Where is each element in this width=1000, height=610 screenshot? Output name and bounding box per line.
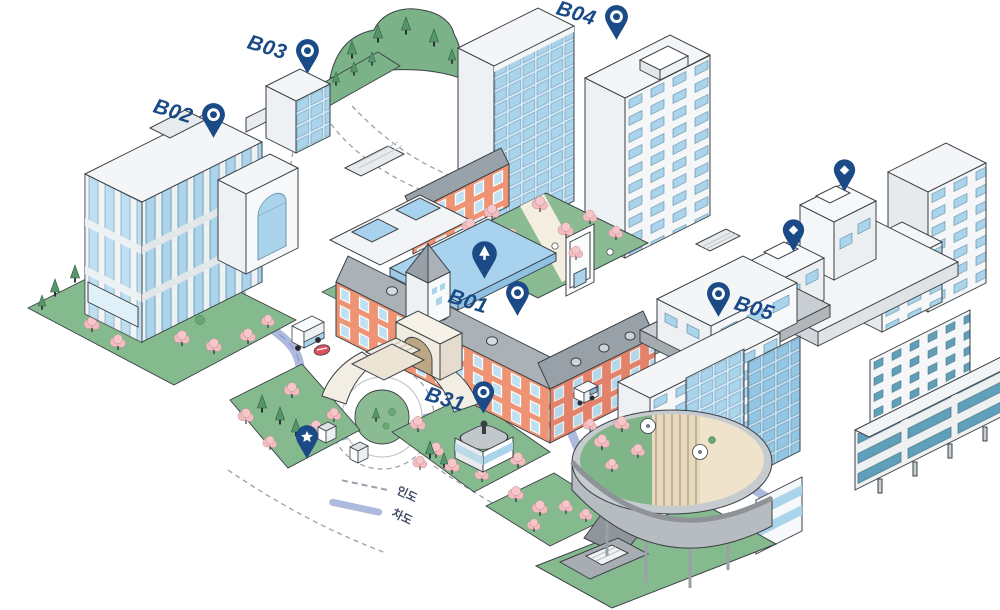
- roadway-solid-line-sample: [329, 498, 383, 516]
- marker-b01[interactable]: B01: [448, 290, 488, 314]
- diamond-pin-icon: [781, 218, 806, 253]
- marker-poi-garden[interactable]: [470, 240, 499, 285]
- marker-b31[interactable]: B31: [425, 388, 465, 412]
- ring-pin-icon: [200, 102, 227, 139]
- marker-b02[interactable]: B02: [153, 100, 193, 124]
- tree-pin-icon: [470, 240, 499, 280]
- ring-pin-icon: [294, 38, 321, 75]
- ring-pin-icon: [705, 281, 732, 318]
- ring-pin-icon: [471, 380, 496, 415]
- star-pin-icon: [294, 424, 320, 460]
- ring-pin-icon: [504, 280, 531, 317]
- campus-map: B02 B03 B04 B01 B05 B31: [0, 0, 1000, 610]
- building-b03[interactable]: [266, 69, 330, 153]
- marker-poi-star[interactable]: [294, 424, 320, 465]
- diamond-pin-icon: [832, 158, 857, 193]
- ring-pin-icon: [603, 4, 630, 41]
- marker-poi-diamond-1[interactable]: [832, 158, 857, 198]
- building-far-right: [855, 310, 1000, 493]
- marker-poi-diamond-2[interactable]: [781, 218, 806, 258]
- marker-b05[interactable]: B05: [734, 297, 774, 321]
- map-illustration: [0, 0, 1000, 610]
- marker-b04[interactable]: B04: [556, 2, 596, 26]
- marker-b03[interactable]: B03: [247, 36, 287, 60]
- sidewalk-dashed-line-sample: [342, 479, 387, 491]
- bus-stop-sign: [313, 343, 331, 357]
